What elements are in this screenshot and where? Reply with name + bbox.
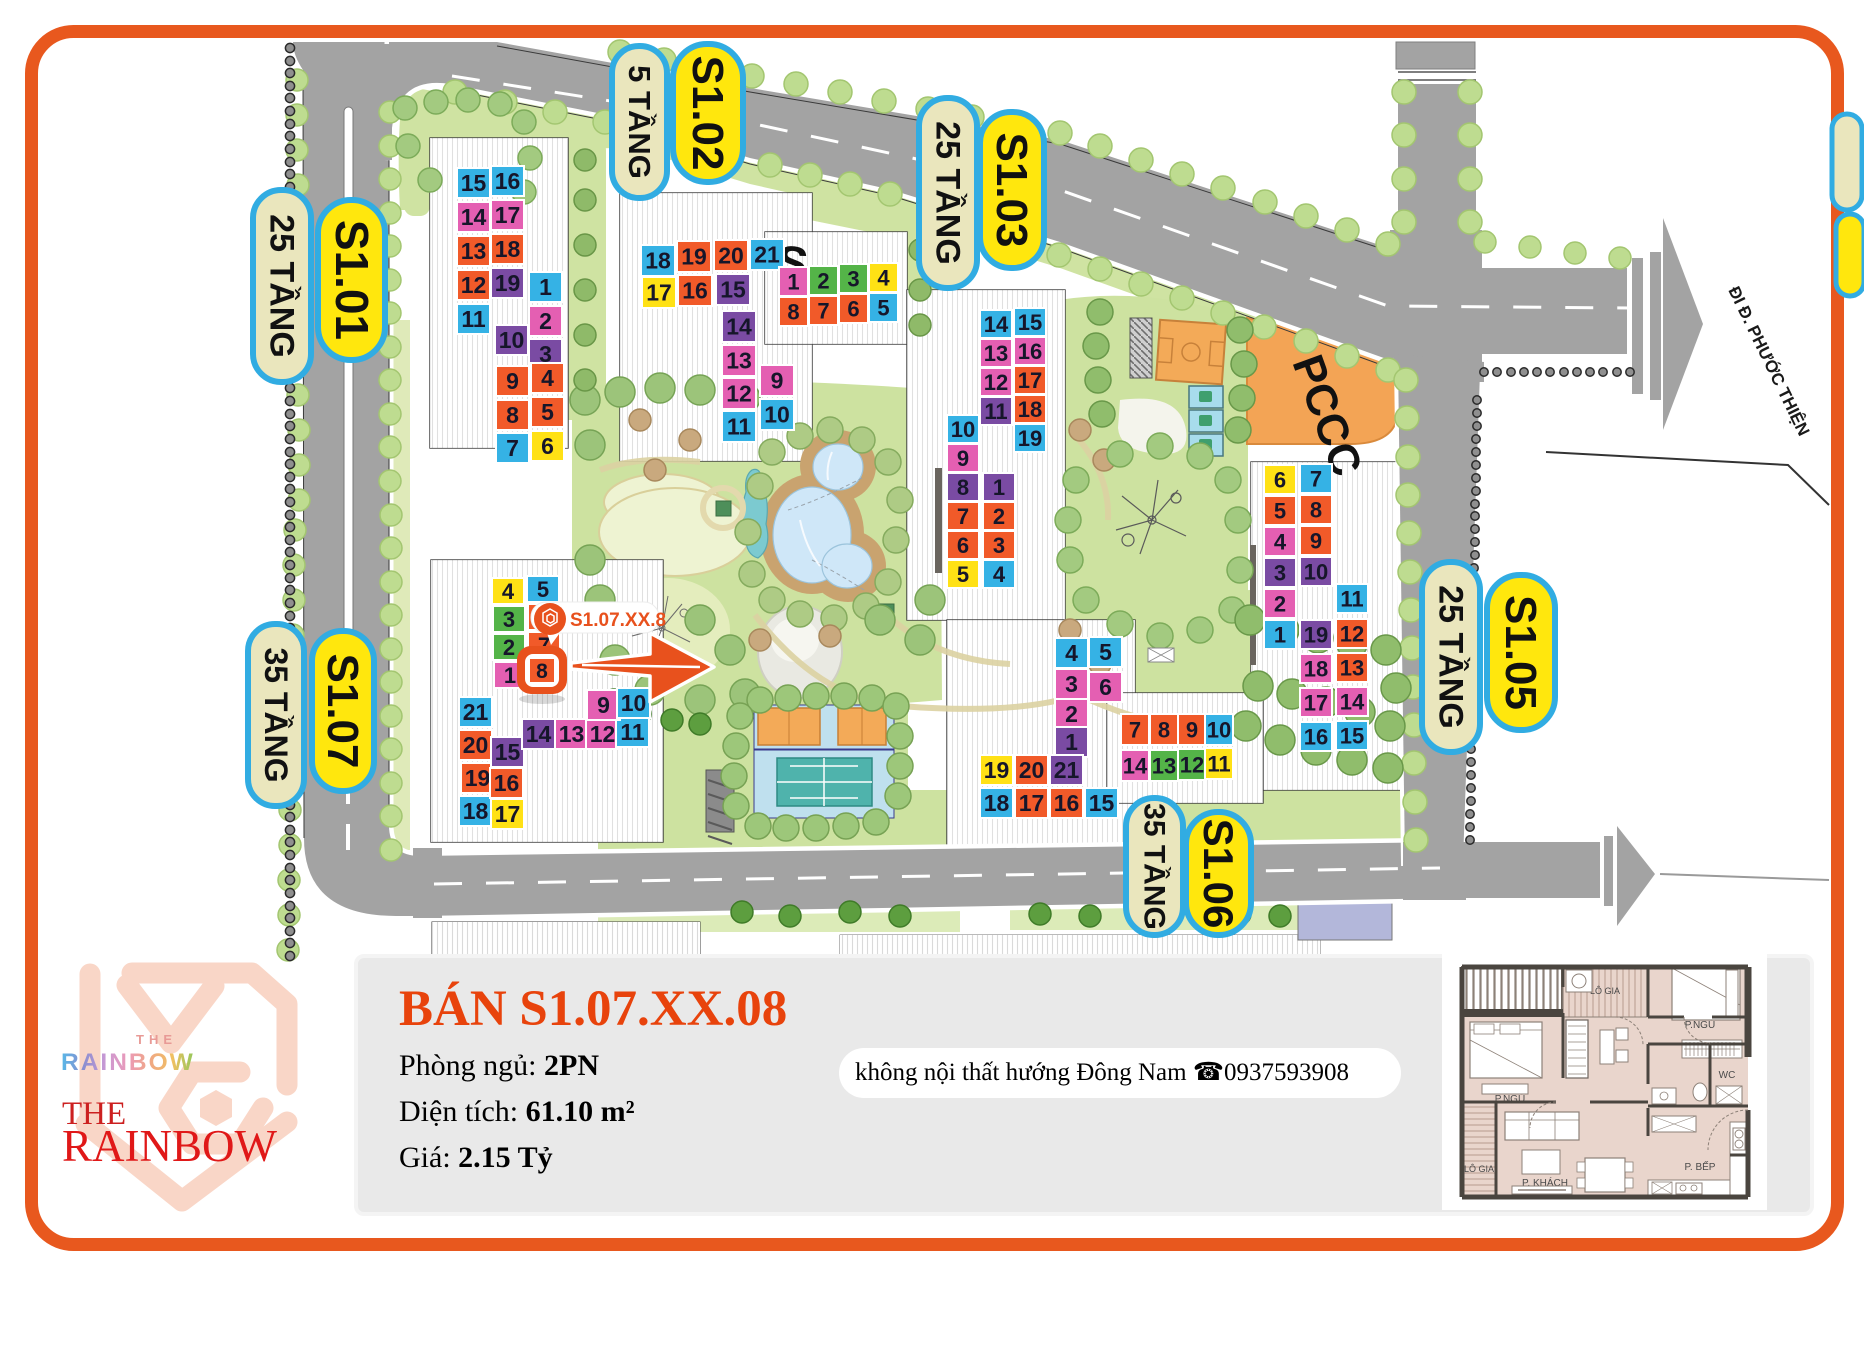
svg-text:19: 19 — [495, 270, 521, 296]
svg-text:9: 9 — [1186, 718, 1198, 743]
svg-text:2: 2 — [993, 504, 1005, 529]
svg-text:4: 4 — [502, 579, 515, 604]
svg-text:10: 10 — [1207, 718, 1231, 743]
svg-text:5 TẦNG: 5 TẦNG — [622, 65, 657, 179]
svg-text:S1.01: S1.01 — [326, 220, 378, 340]
svg-text:13: 13 — [726, 348, 752, 374]
svg-text:9: 9 — [771, 368, 784, 394]
svg-text:9: 9 — [957, 446, 969, 471]
svg-text:20: 20 — [718, 243, 744, 269]
svg-text:LÔ GIA: LÔ GIA — [1590, 986, 1620, 996]
svg-text:10: 10 — [764, 402, 790, 428]
svg-text:15: 15 — [1089, 790, 1115, 816]
svg-text:15: 15 — [1340, 724, 1364, 749]
svg-text:7: 7 — [1129, 718, 1141, 743]
svg-text:25 TẦNG: 25 TẦNG — [262, 214, 300, 358]
svg-text:8: 8 — [957, 475, 969, 500]
svg-text:8: 8 — [1158, 718, 1170, 743]
svg-text:1: 1 — [1065, 729, 1078, 755]
svg-text:17: 17 — [1018, 368, 1042, 393]
svg-text:3: 3 — [1065, 671, 1078, 697]
svg-text:13: 13 — [984, 341, 1008, 366]
svg-text:21: 21 — [754, 242, 780, 268]
svg-text:16: 16 — [495, 168, 521, 194]
svg-text:6: 6 — [1274, 468, 1286, 493]
svg-text:20: 20 — [1019, 757, 1045, 783]
svg-text:5: 5 — [877, 296, 889, 321]
svg-text:1: 1 — [993, 475, 1005, 500]
svg-text:1: 1 — [1274, 623, 1286, 648]
svg-text:3: 3 — [847, 267, 859, 292]
svg-text:S1.03: S1.03 — [987, 133, 1036, 248]
svg-text:25 TẦNG: 25 TẦNG — [1431, 585, 1469, 729]
svg-text:8: 8 — [787, 300, 799, 325]
svg-text:12: 12 — [1180, 753, 1204, 778]
svg-text:16: 16 — [1304, 725, 1328, 750]
svg-text:13: 13 — [559, 721, 585, 747]
svg-text:5: 5 — [541, 399, 554, 425]
svg-text:7: 7 — [506, 435, 519, 461]
svg-text:18: 18 — [1018, 397, 1042, 422]
svg-text:2: 2 — [817, 269, 829, 294]
svg-text:9: 9 — [597, 692, 610, 718]
svg-text:19: 19 — [1018, 426, 1042, 451]
svg-text:14: 14 — [726, 314, 752, 340]
svg-text:S1.05: S1.05 — [1496, 595, 1545, 710]
svg-text:17: 17 — [1304, 691, 1328, 716]
svg-text:1: 1 — [504, 663, 516, 688]
svg-text:12: 12 — [726, 381, 752, 407]
svg-text:14: 14 — [461, 204, 487, 230]
svg-text:13: 13 — [1152, 754, 1176, 779]
svg-text:12: 12 — [1340, 622, 1364, 647]
svg-text:10: 10 — [1304, 560, 1328, 585]
svg-text:7: 7 — [1310, 467, 1322, 492]
svg-text:18: 18 — [495, 236, 521, 262]
svg-text:6: 6 — [847, 297, 859, 322]
svg-text:S1.02: S1.02 — [683, 56, 732, 171]
svg-text:13: 13 — [461, 238, 487, 264]
svg-text:15: 15 — [720, 277, 746, 303]
svg-text:14: 14 — [984, 312, 1009, 337]
svg-text:19: 19 — [681, 244, 707, 270]
svg-text:11: 11 — [461, 306, 486, 332]
svg-text:6: 6 — [541, 433, 554, 459]
svg-text:20: 20 — [463, 732, 489, 758]
svg-text:17: 17 — [495, 202, 521, 228]
svg-text:16: 16 — [494, 770, 520, 796]
svg-text:16: 16 — [1018, 339, 1042, 364]
svg-text:14: 14 — [526, 721, 552, 747]
svg-text:17: 17 — [495, 801, 521, 827]
svg-text:11: 11 — [1207, 752, 1230, 777]
svg-text:S1.06: S1.06 — [1195, 819, 1242, 929]
svg-text:17: 17 — [1019, 790, 1045, 816]
svg-text:15: 15 — [495, 739, 521, 765]
svg-text:35 TẦNG: 35 TẦNG — [258, 647, 294, 782]
svg-text:6: 6 — [957, 533, 969, 558]
svg-text:17: 17 — [646, 280, 672, 306]
svg-text:2: 2 — [503, 635, 515, 660]
svg-text:4: 4 — [993, 562, 1006, 587]
svg-text:4: 4 — [1274, 530, 1287, 555]
svg-text:5: 5 — [1099, 639, 1112, 665]
svg-text:2: 2 — [539, 308, 552, 334]
svg-text:S1.07.XX.8: S1.07.XX.8 — [570, 610, 666, 631]
svg-text:10: 10 — [951, 417, 975, 442]
svg-text:16: 16 — [1054, 790, 1080, 816]
svg-text:14: 14 — [1123, 754, 1148, 779]
svg-text:21: 21 — [463, 699, 489, 725]
svg-text:10: 10 — [621, 690, 647, 716]
svg-text:8: 8 — [1310, 498, 1322, 523]
svg-text:2: 2 — [1065, 701, 1078, 727]
svg-text:12: 12 — [984, 370, 1008, 395]
svg-text:WC: WC — [1719, 1070, 1736, 1081]
svg-text:15: 15 — [1018, 310, 1042, 335]
svg-text:3: 3 — [503, 607, 515, 632]
svg-text:11: 11 — [620, 719, 645, 745]
svg-text:19: 19 — [465, 765, 491, 791]
svg-text:4: 4 — [1065, 640, 1078, 666]
svg-text:9: 9 — [506, 368, 519, 394]
svg-text:5: 5 — [957, 562, 969, 587]
svg-text:3: 3 — [993, 533, 1005, 558]
svg-text:8: 8 — [536, 660, 548, 683]
svg-text:7: 7 — [817, 299, 829, 324]
svg-text:25 TẦNG: 25 TẦNG — [928, 121, 966, 265]
svg-text:4: 4 — [541, 365, 554, 391]
svg-text:3: 3 — [1274, 561, 1286, 586]
svg-text:12: 12 — [461, 272, 487, 298]
svg-text:8: 8 — [506, 402, 519, 428]
svg-text:9: 9 — [1310, 529, 1322, 554]
svg-text:18: 18 — [463, 798, 489, 824]
svg-text:P. BẾP: P. BẾP — [1685, 1160, 1716, 1173]
svg-text:35 TẦNG: 35 TẦNG — [1137, 803, 1171, 930]
svg-text:15: 15 — [461, 170, 487, 196]
svg-text:18: 18 — [984, 790, 1010, 816]
svg-text:18: 18 — [1304, 657, 1328, 682]
svg-text:S1.07: S1.07 — [318, 654, 367, 769]
svg-text:13: 13 — [1340, 656, 1364, 681]
svg-text:19: 19 — [984, 757, 1010, 783]
svg-text:21: 21 — [1054, 757, 1080, 783]
svg-text:16: 16 — [682, 278, 708, 304]
svg-text:5: 5 — [1274, 499, 1286, 524]
svg-text:1: 1 — [787, 270, 799, 295]
svg-text:11: 11 — [727, 414, 752, 440]
svg-text:6: 6 — [1099, 674, 1112, 700]
svg-text:LÔ GIA: LÔ GIA — [1464, 1164, 1494, 1174]
svg-text:2: 2 — [1274, 592, 1286, 617]
svg-text:10: 10 — [499, 327, 525, 353]
svg-text:14: 14 — [1340, 690, 1365, 715]
svg-text:1: 1 — [539, 274, 552, 300]
svg-text:11: 11 — [1340, 587, 1363, 612]
svg-text:5: 5 — [537, 577, 549, 602]
svg-text:7: 7 — [957, 504, 969, 529]
svg-text:18: 18 — [645, 248, 671, 274]
svg-text:11: 11 — [984, 399, 1007, 424]
svg-text:4: 4 — [877, 266, 890, 291]
svg-text:19: 19 — [1304, 623, 1328, 648]
svg-text:12: 12 — [590, 721, 616, 747]
